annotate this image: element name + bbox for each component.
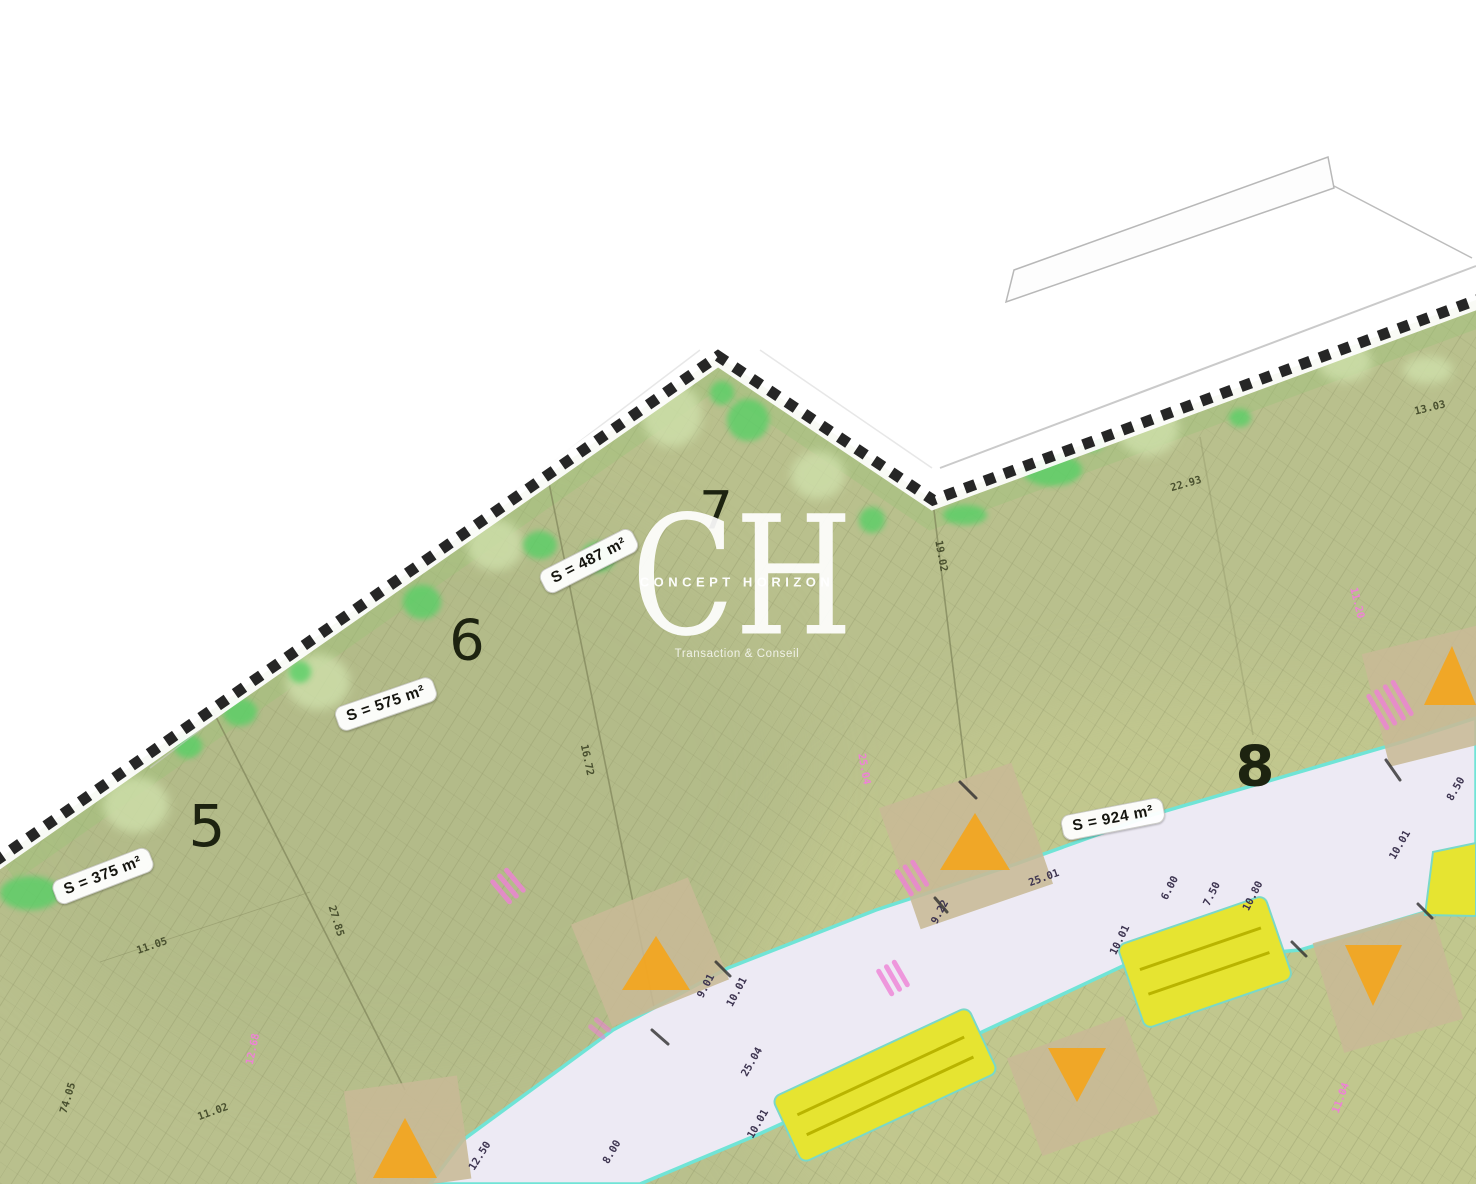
- parking-bay: [1425, 843, 1476, 916]
- plot-plan-canvas: [0, 0, 1476, 1184]
- land-plot-map[interactable]: [0, 0, 1476, 1184]
